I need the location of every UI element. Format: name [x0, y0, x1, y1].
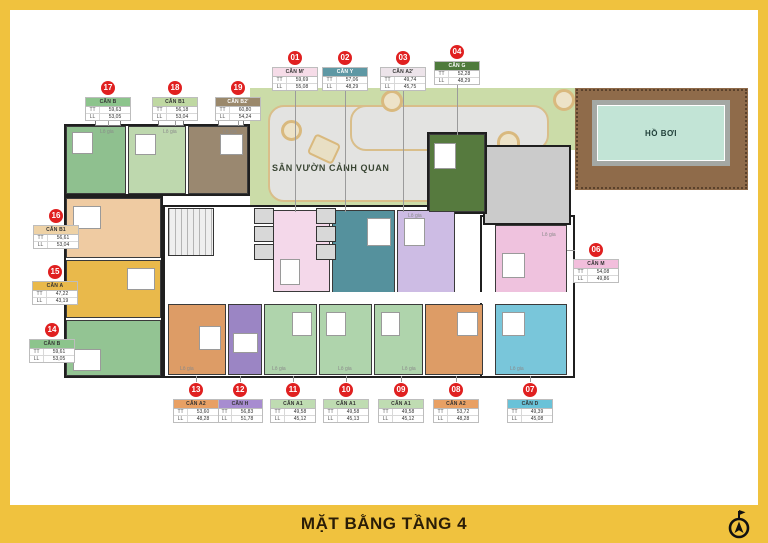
- unit-number-badge: 13: [189, 383, 203, 397]
- unit-04-area: [429, 134, 485, 212]
- garden-planter-icon: [281, 120, 302, 141]
- logia-label: Lô gia: [338, 366, 352, 372]
- unit-17-area: [66, 126, 126, 194]
- unit-number-badge: 06: [589, 243, 603, 257]
- floor-plan-page: SÂN VƯỜN CẢNH QUAN HỒ BƠI: [0, 0, 768, 543]
- unit-marker-11: 11 CĂN A1 TT49,58 LL45,12: [270, 383, 316, 423]
- corridor: [165, 292, 569, 303]
- unit-number-badge: 01: [288, 51, 302, 65]
- unit-09-area: [374, 304, 423, 375]
- elevator: [254, 208, 274, 224]
- unit-number-badge: 12: [233, 383, 247, 397]
- unit-marker-08: 08 CĂN A2 TT53,72 LL48,28: [433, 383, 479, 423]
- logia-label: Lô gia: [510, 366, 524, 372]
- unit-info-table: CĂN M' TT59,69 LL55,08: [272, 67, 318, 91]
- unit-number-badge: 07: [523, 383, 537, 397]
- unit-number-badge: 18: [168, 81, 182, 95]
- unit-marker-02: 02 CĂN Y TT57,06 LL48,29: [322, 51, 368, 91]
- logia-label: Lô gia: [402, 366, 416, 372]
- unit-number-badge: 16: [49, 209, 63, 223]
- unit-03-area: [397, 210, 455, 300]
- title-bar: MẶT BẰNG TẦNG 4: [0, 505, 768, 543]
- unit-info-table: CĂN B1 TT56,18 LL53,04: [152, 97, 198, 121]
- unit-15-area: [66, 260, 161, 318]
- unit-marker-07: 07 CĂN D TT49,39 LL45,08: [507, 383, 553, 423]
- elevator: [254, 226, 274, 242]
- unit-18-area: [128, 126, 186, 194]
- unit-marker-01: 01 CĂN M' TT59,69 LL55,08: [272, 51, 318, 91]
- logia-label: Lô gia: [100, 129, 114, 135]
- unit-number-badge: 02: [338, 51, 352, 65]
- unit-info-table: CĂN A1 TT49,58 LL45,13: [323, 399, 369, 423]
- unit-11-area: [264, 304, 317, 375]
- north-arrow-icon: [724, 508, 754, 543]
- logia-label: Lô gia: [223, 129, 237, 135]
- unit-number-badge: 04: [450, 45, 464, 59]
- unit-marker-06: 06 CĂN M TT54,08 LL49,86: [573, 243, 619, 283]
- stairwell: [168, 208, 214, 256]
- elevator: [316, 208, 336, 224]
- unit-marker-17: 17 CĂN B TT59,63 LL53,05: [85, 81, 131, 121]
- unit-marker-14: 14 CĂN B TT59,61 LL53,05: [29, 323, 75, 363]
- unit-number-badge: 19: [231, 81, 245, 95]
- swimming-pool: HỒ BƠI: [592, 100, 730, 166]
- logia-label: Lô gia: [408, 213, 422, 219]
- unit-14-area: [66, 320, 161, 376]
- unit-info-table: CĂN M TT54,08 LL49,86: [573, 259, 619, 283]
- terrace-area: [483, 145, 571, 225]
- unit-marker-18: 18 CĂN B1 TT56,18 LL53,04: [152, 81, 198, 121]
- unit-08-area: [425, 304, 483, 375]
- unit-info-table: CĂN B1 TT56,61 LL53,04: [33, 225, 79, 249]
- unit-13-area: [168, 304, 226, 375]
- unit-info-table: CĂN B TT59,61 LL53,05: [29, 339, 75, 363]
- unit-19-area: [188, 126, 248, 194]
- unit-06-area: [495, 225, 567, 302]
- unit-number-badge: 08: [449, 383, 463, 397]
- unit-info-table: CĂN H TT56,83 LL51,78: [217, 399, 263, 423]
- unit-number-badge: 09: [394, 383, 408, 397]
- elevator: [316, 244, 336, 260]
- unit-10-area: [319, 304, 372, 375]
- logia-label: Lô gia: [180, 366, 194, 372]
- unit-marker-13: 13 CĂN A2 TT53,60 LL48,28: [173, 383, 219, 423]
- unit-marker-09: 09 CĂN A1 TT49,58 LL45,12: [378, 383, 424, 423]
- unit-marker-10: 10 CĂN A1 TT49,58 LL45,13: [323, 383, 369, 423]
- unit-info-table: CĂN B2' TT60,80 LL54,24: [215, 97, 261, 121]
- unit-info-table: CĂN A TT47,22 LL43,19: [32, 281, 78, 305]
- unit-marker-04: 04 CĂN G TT52,28 LL48,29: [434, 45, 480, 85]
- garden-planter-icon: [553, 89, 575, 111]
- leader-line-02: [345, 84, 346, 212]
- unit-number-badge: 10: [339, 383, 353, 397]
- garden-planter-icon: [381, 90, 403, 112]
- page-title: MẶT BẰNG TẦNG 4: [301, 514, 467, 534]
- unit-marker-03: 03 CĂN A2' TT49,74 LL45,75: [380, 51, 426, 91]
- unit-info-table: CĂN B TT59,63 LL53,05: [85, 97, 131, 121]
- logia-label: Lô gia: [163, 129, 177, 135]
- unit-info-table: CĂN G TT52,28 LL48,29: [434, 61, 480, 85]
- pool-label: HỒ BƠI: [645, 129, 677, 138]
- unit-marker-19: 19 CĂN B2' TT60,80 LL54,24: [215, 81, 261, 121]
- unit-number-badge: 17: [101, 81, 115, 95]
- logia-label: Lô gia: [272, 366, 286, 372]
- plan-canvas: SÂN VƯỜN CẢNH QUAN HỒ BƠI: [10, 10, 758, 505]
- unit-number-badge: 11: [286, 383, 300, 397]
- elevator: [316, 226, 336, 242]
- unit-info-table: CĂN D TT49,39 LL45,08: [507, 399, 553, 423]
- unit-marker-15: 15 CĂN A TT47,22 LL43,19: [32, 265, 78, 305]
- unit-info-table: CĂN A2' TT49,74 LL45,75: [380, 67, 426, 91]
- unit-marker-12: 12 CĂN H TT56,83 LL51,78: [217, 383, 263, 423]
- leader-line-04: [457, 79, 458, 135]
- unit-info-table: CĂN A2 TT53,60 LL48,28: [173, 399, 219, 423]
- garden-label: SÂN VƯỜN CẢNH QUAN: [272, 163, 389, 173]
- unit-02-area: [332, 210, 395, 300]
- leader-line-03: [403, 84, 404, 212]
- unit-12-area: [228, 304, 262, 375]
- unit-info-table: CĂN A1 TT49,58 LL45,12: [378, 399, 424, 423]
- unit-info-table: CĂN Y TT57,06 LL48,29: [322, 67, 368, 91]
- unit-16-area: [66, 198, 161, 258]
- unit-info-table: CĂN A2 TT53,72 LL48,28: [433, 399, 479, 423]
- unit-number-badge: 15: [48, 265, 62, 279]
- unit-07-area: [495, 304, 567, 375]
- unit-marker-16: 16 CĂN B1 TT56,61 LL53,04: [33, 209, 79, 249]
- logia-label: Lô gia: [542, 232, 556, 238]
- elevator: [254, 244, 274, 260]
- unit-number-badge: 03: [396, 51, 410, 65]
- unit-number-badge: 14: [45, 323, 59, 337]
- unit-info-table: CĂN A1 TT49,58 LL45,12: [270, 399, 316, 423]
- leader-line-01: [295, 84, 296, 212]
